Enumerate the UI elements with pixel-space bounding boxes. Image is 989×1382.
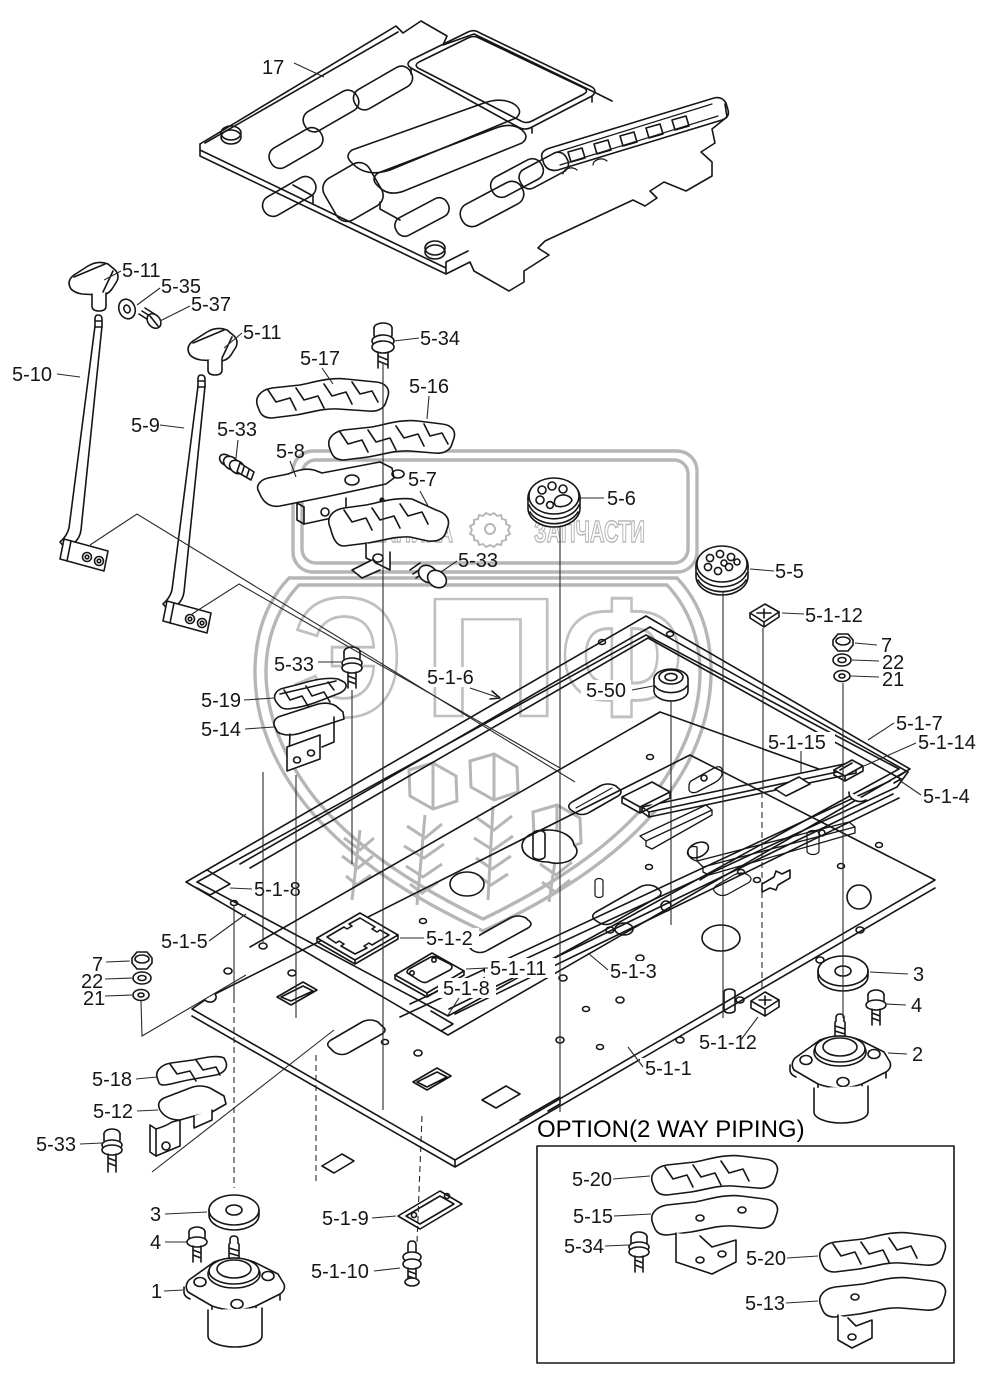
svg-text:5-18: 5-18 <box>92 1069 132 1091</box>
svg-text:5-8: 5-8 <box>276 441 305 463</box>
svg-text:5-6: 5-6 <box>607 488 636 510</box>
svg-text:5-20: 5-20 <box>746 1248 786 1270</box>
svg-text:5-1-12: 5-1-12 <box>805 605 863 627</box>
svg-text:5-17: 5-17 <box>300 348 340 370</box>
svg-text:5-16: 5-16 <box>409 376 449 398</box>
svg-text:2: 2 <box>912 1044 923 1066</box>
svg-text:5-33: 5-33 <box>274 654 314 676</box>
svg-text:5-12: 5-12 <box>93 1101 133 1123</box>
svg-text:5-33: 5-33 <box>217 419 257 441</box>
svg-text:21: 21 <box>83 988 105 1010</box>
svg-text:21: 21 <box>882 669 904 691</box>
svg-text:3: 3 <box>913 964 924 986</box>
svg-text:5-34: 5-34 <box>420 328 460 350</box>
svg-text:5-34: 5-34 <box>564 1236 604 1258</box>
svg-text:5-1-12: 5-1-12 <box>699 1032 757 1054</box>
svg-text:5-20: 5-20 <box>572 1169 612 1191</box>
svg-text:5-1-9: 5-1-9 <box>322 1208 369 1230</box>
svg-text:5-10: 5-10 <box>12 364 52 386</box>
svg-text:5-1-4: 5-1-4 <box>923 786 970 808</box>
svg-text:5-33: 5-33 <box>458 550 498 572</box>
svg-text:5-13: 5-13 <box>745 1293 785 1315</box>
svg-text:5-1-10: 5-1-10 <box>311 1261 369 1283</box>
svg-text:5-1-1: 5-1-1 <box>645 1058 692 1080</box>
svg-text:П: П <box>422 563 560 752</box>
svg-text:5-11: 5-11 <box>122 260 161 282</box>
svg-text:1: 1 <box>151 1281 162 1303</box>
svg-text:5-5: 5-5 <box>775 561 804 583</box>
svg-text:5-15: 5-15 <box>573 1206 613 1228</box>
svg-text:5-1-6: 5-1-6 <box>427 667 474 689</box>
svg-text:5-1-2: 5-1-2 <box>426 928 473 950</box>
svg-text:5-37: 5-37 <box>191 294 231 316</box>
svg-text:5-19: 5-19 <box>201 690 241 712</box>
svg-text:5-1-8: 5-1-8 <box>254 879 301 901</box>
svg-text:5-1-15: 5-1-15 <box>768 732 826 754</box>
svg-text:5-7: 5-7 <box>408 469 437 491</box>
svg-text:5-33: 5-33 <box>36 1134 76 1156</box>
svg-text:5-14: 5-14 <box>201 719 241 741</box>
svg-text:5-11: 5-11 <box>243 322 282 344</box>
svg-text:5-1-5: 5-1-5 <box>161 931 208 953</box>
svg-text:3: 3 <box>150 1204 161 1226</box>
svg-text:4: 4 <box>150 1232 161 1254</box>
svg-text:5-1-3: 5-1-3 <box>610 961 657 983</box>
svg-text:5-9: 5-9 <box>131 415 160 437</box>
svg-text:5-1-11: 5-1-11 <box>490 958 546 980</box>
svg-text:4: 4 <box>911 995 922 1017</box>
svg-text:5-1-14: 5-1-14 <box>918 732 976 754</box>
svg-text:5-1-8: 5-1-8 <box>443 978 490 1000</box>
svg-text:17: 17 <box>262 57 284 79</box>
svg-text:Ф: Ф <box>560 563 683 753</box>
svg-text:OPTION(2 WAY PIPING): OPTION(2 WAY PIPING) <box>537 1116 805 1143</box>
svg-text:5-50: 5-50 <box>586 680 626 702</box>
